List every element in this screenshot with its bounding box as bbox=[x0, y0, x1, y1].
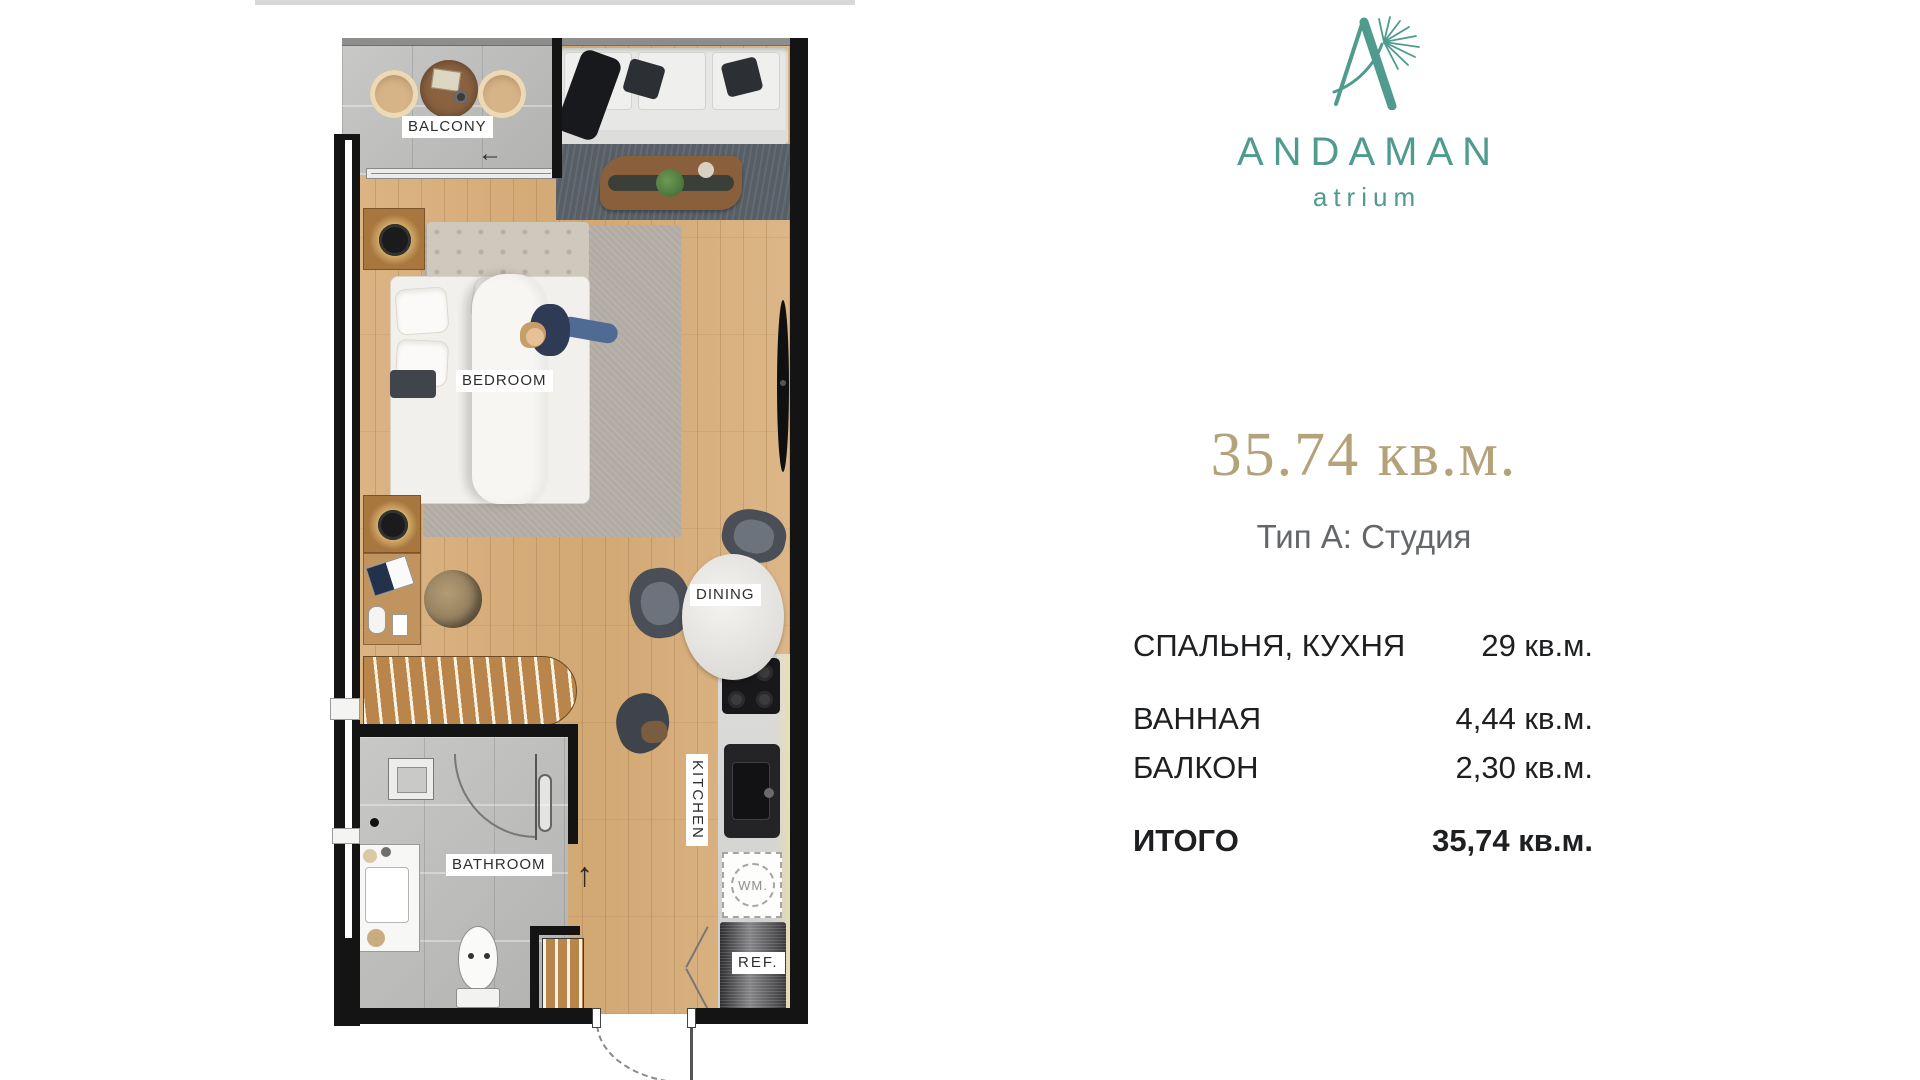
row-value: 35,74 кв.м. bbox=[1432, 823, 1593, 859]
door-frame bbox=[687, 1008, 696, 1028]
shoe-rack bbox=[542, 938, 584, 1012]
soap bbox=[381, 847, 391, 857]
window-rail bbox=[342, 38, 790, 46]
cup bbox=[454, 90, 468, 104]
table-row: ВАННАЯ 4,44 кв.м. bbox=[1133, 701, 1593, 737]
row-value: 2,30 кв.м. bbox=[1455, 750, 1593, 786]
balcony-sliding-door bbox=[366, 168, 556, 179]
soap bbox=[363, 849, 377, 863]
bed-headboard bbox=[427, 222, 589, 280]
andaman-palm-logo-icon bbox=[1322, 14, 1422, 110]
wall bbox=[696, 1008, 808, 1024]
bathroom-label: BATHROOM bbox=[446, 854, 552, 876]
laptop bbox=[365, 555, 414, 597]
row-label: ВАННАЯ bbox=[1133, 701, 1261, 737]
slatted-bench bbox=[363, 656, 577, 726]
brand-subtitle: atrium bbox=[1128, 182, 1600, 213]
coffee-table bbox=[600, 156, 742, 210]
towel-roll bbox=[367, 929, 385, 947]
table-row: СПАЛЬНЯ, КУХНЯ 29 кв.м. bbox=[1133, 628, 1593, 664]
balcony-table bbox=[420, 60, 478, 118]
bathroom-door bbox=[535, 754, 537, 840]
desk-chair bbox=[424, 570, 482, 628]
table-lamp bbox=[379, 224, 411, 256]
desk-lamp-table bbox=[363, 495, 421, 553]
bathroom-sink bbox=[388, 758, 434, 800]
wall bbox=[352, 724, 578, 737]
entry-door-swing bbox=[596, 1022, 690, 1080]
entry-door bbox=[690, 1022, 693, 1080]
book bbox=[431, 68, 462, 92]
nightstand bbox=[363, 208, 425, 270]
washing-machine: WM. bbox=[722, 852, 782, 918]
unit-type-line: Тип А: Студия bbox=[1128, 518, 1600, 556]
kitchen-sink bbox=[724, 744, 780, 838]
plan-edge-strip bbox=[255, 0, 855, 5]
entry-arrow: ↑ bbox=[576, 858, 593, 892]
info-panel: ANDAMAN atrium 35.74 кв.м. Тип А: Студия… bbox=[1128, 0, 1600, 1080]
brochure-page: { "logo": { "name": "ANDAMAN", "subtitle… bbox=[0, 0, 1920, 1080]
toilet bbox=[458, 926, 498, 990]
brand-name: ANDAMAN bbox=[1128, 130, 1600, 175]
notepad bbox=[392, 614, 408, 636]
vanity bbox=[356, 844, 420, 952]
floor-drain bbox=[370, 818, 379, 827]
wall bbox=[568, 724, 578, 844]
balcony-chair bbox=[478, 70, 526, 118]
person-on-bed bbox=[526, 328, 544, 346]
row-label: ИТОГО bbox=[1133, 823, 1239, 859]
washing-machine-drum: WM. bbox=[731, 863, 775, 907]
wall-tv bbox=[777, 300, 789, 472]
wall-opening bbox=[330, 698, 360, 720]
sofa bbox=[560, 48, 788, 144]
balcony-label: BALCONY bbox=[402, 116, 493, 138]
row-value: 29 кв.м. bbox=[1481, 628, 1593, 664]
plant bbox=[656, 169, 684, 197]
dining-table bbox=[682, 554, 784, 680]
folded-blanket bbox=[390, 370, 436, 398]
bed-pillow bbox=[394, 286, 449, 336]
dining-label: DINING bbox=[690, 584, 761, 606]
row-label: СПАЛЬНЯ, КУХНЯ bbox=[1133, 628, 1405, 664]
desk bbox=[363, 553, 421, 645]
table-row-total: ИТОГО 35,74 кв.м. bbox=[1133, 823, 1593, 859]
towel-rail bbox=[538, 774, 552, 832]
faucet bbox=[764, 788, 774, 798]
wall bbox=[552, 38, 562, 178]
total-area-headline: 35.74 кв.м. bbox=[1128, 420, 1600, 491]
wall bbox=[530, 926, 539, 1018]
balcony-chair bbox=[370, 70, 418, 118]
table-lamp bbox=[378, 510, 408, 540]
table-row: БАЛКОН 2,30 кв.м. bbox=[1133, 750, 1593, 786]
vanity-basin bbox=[365, 867, 409, 923]
row-label: БАЛКОН bbox=[1133, 750, 1259, 786]
kitchen-label: KITCHEN bbox=[686, 754, 708, 846]
wall bbox=[790, 38, 808, 1024]
fridge-label: REF. bbox=[732, 952, 785, 974]
wall-opening bbox=[332, 828, 360, 844]
wall bbox=[334, 1008, 596, 1024]
floor-plan: WM. BALCONY BEDROOM DINING KITCHEN BATHR… bbox=[330, 8, 808, 1074]
row-value: 4,44 кв.м. bbox=[1455, 701, 1593, 737]
plate bbox=[698, 162, 714, 178]
remote bbox=[368, 606, 386, 634]
door-frame bbox=[592, 1008, 601, 1028]
toilet-tank bbox=[456, 988, 500, 1008]
wall-channel bbox=[343, 140, 354, 938]
balcony-door-arrow: ← bbox=[478, 142, 502, 166]
bedroom-label: BEDROOM bbox=[456, 370, 553, 392]
